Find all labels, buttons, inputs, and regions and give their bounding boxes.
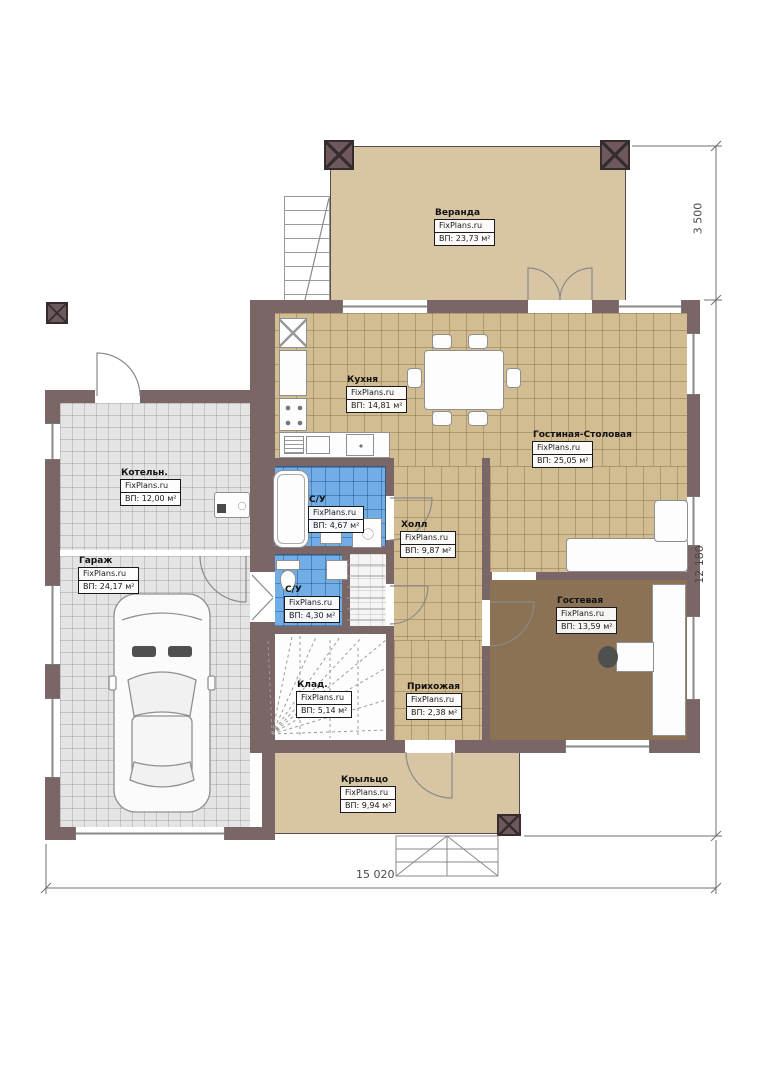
dining-chair xyxy=(407,368,422,388)
door-opening-veranda xyxy=(528,300,592,313)
window-living-top xyxy=(618,300,682,313)
dining-chair xyxy=(468,334,488,349)
door-opening-bath1 xyxy=(386,496,394,540)
porch-post xyxy=(497,814,521,836)
door-opening-boiler xyxy=(95,390,140,403)
room-area: ВП: 4,67 м² xyxy=(309,519,363,532)
dining-chair xyxy=(432,334,452,349)
dimension-house-depth: 12 180 xyxy=(693,545,706,584)
toilet-tank xyxy=(276,560,300,570)
garage-gate xyxy=(75,827,225,840)
watermark: FixPlans.ru xyxy=(309,507,363,519)
veranda-post-right xyxy=(600,140,630,170)
watermark: FixPlans.ru xyxy=(435,220,494,232)
veranda-post-left xyxy=(324,140,354,170)
partition-kitchen-bath xyxy=(262,458,390,466)
room-name: С/У xyxy=(309,495,364,505)
stove xyxy=(279,398,307,431)
room-info-box: FixPlans.ru ВП: 4,30 м² xyxy=(284,596,340,623)
hob xyxy=(346,434,374,456)
watermark: FixPlans.ru xyxy=(341,787,395,799)
window-living-right xyxy=(687,333,700,395)
stairs-upper-flight xyxy=(346,554,386,634)
dimension-house-width: 15 020 xyxy=(356,868,395,881)
window-kitchen xyxy=(342,300,428,313)
room-label-boiler: Котельн. FixPlans.ru ВП: 12,00 м² xyxy=(120,468,181,506)
watermark: FixPlans.ru xyxy=(407,694,461,706)
room-info-box: FixPlans.ru ВП: 14,81 м² xyxy=(346,386,407,413)
partition-stairs-top xyxy=(262,626,390,634)
room-area: ВП: 25,05 м² xyxy=(533,454,592,467)
washbasin-bath2 xyxy=(326,560,348,580)
room-area: ВП: 14,81 м² xyxy=(347,399,406,412)
watermark: FixPlans.ru xyxy=(347,387,406,399)
room-info-box: FixPlans.ru ВП: 25,05 м² xyxy=(532,441,593,468)
dining-chair xyxy=(468,411,488,426)
door-opening-bath2 xyxy=(386,584,394,626)
room-name: Прихожая xyxy=(407,682,462,692)
window-garage-left2 xyxy=(45,698,60,778)
room-info-box: FixPlans.ru ВП: 4,67 м² xyxy=(308,506,364,533)
room-label-living: Гостиная-Столовая FixPlans.ru ВП: 25,05 … xyxy=(532,430,632,468)
room-name: Веранда xyxy=(435,208,495,218)
room-label-kitchen: Кухня FixPlans.ru ВП: 14,81 м² xyxy=(346,375,407,413)
room-info-box: FixPlans.ru ВП: 13,59 м² xyxy=(556,607,617,634)
window-living-right2 xyxy=(687,496,700,546)
room-name: Крыльцо xyxy=(341,775,396,785)
room-info-box: FixPlans.ru ВП: 24,17 м² xyxy=(78,567,139,594)
room-area: ВП: 5,14 м² xyxy=(297,704,351,717)
kitchen-cabinet xyxy=(279,350,307,396)
room-area: ВП: 9,87 м² xyxy=(401,544,455,557)
fridge xyxy=(279,318,307,348)
watermark: FixPlans.ru xyxy=(533,442,592,454)
room-area: ВП: 4,30 м² xyxy=(285,609,339,622)
room-area: ВП: 23,73 м² xyxy=(435,232,494,245)
room-info-box: FixPlans.ru ВП: 9,87 м² xyxy=(400,531,456,558)
room-name: С/У xyxy=(285,585,340,595)
window-boiler-left xyxy=(45,423,60,460)
sofa xyxy=(566,538,688,572)
room-name: Гараж xyxy=(79,556,139,566)
watermark: FixPlans.ru xyxy=(297,692,351,704)
room-info-box: FixPlans.ru ВП: 2,38 м² xyxy=(406,693,462,720)
room-label-garage: Гараж FixPlans.ru ВП: 24,17 м² xyxy=(78,556,139,594)
dining-table xyxy=(424,350,504,410)
room-label-veranda: Веранда FixPlans.ru ВП: 23,73 м² xyxy=(434,208,495,246)
room-floor-garage xyxy=(60,556,250,827)
dish-rack xyxy=(284,436,304,454)
floor-plan: Веранда FixPlans.ru ВП: 23,73 м² Кухня F… xyxy=(0,0,763,1080)
room-name: Клад. xyxy=(297,680,352,690)
room-label-porch: Крыльцо FixPlans.ru ВП: 9,94 м² xyxy=(340,775,396,813)
room-label-entry: Прихожая FixPlans.ru ВП: 2,38 м² xyxy=(406,682,462,720)
room-name: Гостевая xyxy=(557,596,617,606)
dimension-veranda-depth: 3 500 xyxy=(691,203,704,235)
room-area: ВП: 2,38 м² xyxy=(407,706,461,719)
room-area: ВП: 12,00 м² xyxy=(121,492,180,505)
room-info-box: FixPlans.ru ВП: 5,14 м² xyxy=(296,691,352,718)
watermark: FixPlans.ru xyxy=(285,597,339,609)
kitchen-sink xyxy=(306,436,330,454)
door-opening-guest xyxy=(482,600,490,646)
room-info-box: FixPlans.ru ВП: 9,94 м² xyxy=(340,786,396,813)
room-label-bath1: С/У FixPlans.ru ВП: 4,67 м² xyxy=(308,495,364,533)
wall-wing-top xyxy=(45,390,275,403)
partition-living-hall xyxy=(482,458,490,740)
sofa-corner xyxy=(654,500,688,542)
window-guest-right xyxy=(687,616,700,700)
desk xyxy=(616,642,654,672)
desk-chair xyxy=(598,646,618,668)
watermark: FixPlans.ru xyxy=(121,480,180,492)
room-name: Котельн. xyxy=(121,468,181,478)
boiler-equipment xyxy=(217,504,226,513)
room-name: Холл xyxy=(401,520,456,530)
room-area: ВП: 9,94 м² xyxy=(341,799,395,812)
wall-porch-left xyxy=(262,753,275,836)
freestanding-post xyxy=(46,302,68,324)
dining-chair xyxy=(506,368,521,388)
watermark: FixPlans.ru xyxy=(557,608,616,620)
window-guest-bottom xyxy=(565,740,650,753)
wall-left-upper xyxy=(250,300,275,403)
watermark: FixPlans.ru xyxy=(401,532,455,544)
room-label-storage: Клад. FixPlans.ru ВП: 5,14 м² xyxy=(296,680,352,718)
room-info-box: FixPlans.ru ВП: 12,00 м² xyxy=(120,479,181,506)
passage-living-guest xyxy=(492,572,536,580)
room-name: Кухня xyxy=(347,375,407,385)
room-label-hall: Холл FixPlans.ru ВП: 9,87 м² xyxy=(400,520,456,558)
room-label-bath2: С/У FixPlans.ru ВП: 4,30 м² xyxy=(284,585,340,623)
bathtub xyxy=(273,470,309,548)
room-area: ВП: 13,59 м² xyxy=(557,620,616,633)
watermark: FixPlans.ru xyxy=(79,568,138,580)
room-info-box: FixPlans.ru ВП: 23,73 м² xyxy=(434,219,495,246)
room-area: ВП: 24,17 м² xyxy=(79,580,138,593)
door-opening-entrance xyxy=(405,740,455,753)
veranda-exterior-stairs xyxy=(284,196,330,302)
room-name: Гостиная-Столовая xyxy=(533,430,632,440)
dining-chair xyxy=(432,411,452,426)
door-opening-garage-house xyxy=(250,572,275,622)
room-label-guest: Гостевая FixPlans.ru ВП: 13,59 м² xyxy=(556,596,617,634)
window-garage-left1 xyxy=(45,585,60,665)
guest-wardrobe xyxy=(652,584,686,736)
